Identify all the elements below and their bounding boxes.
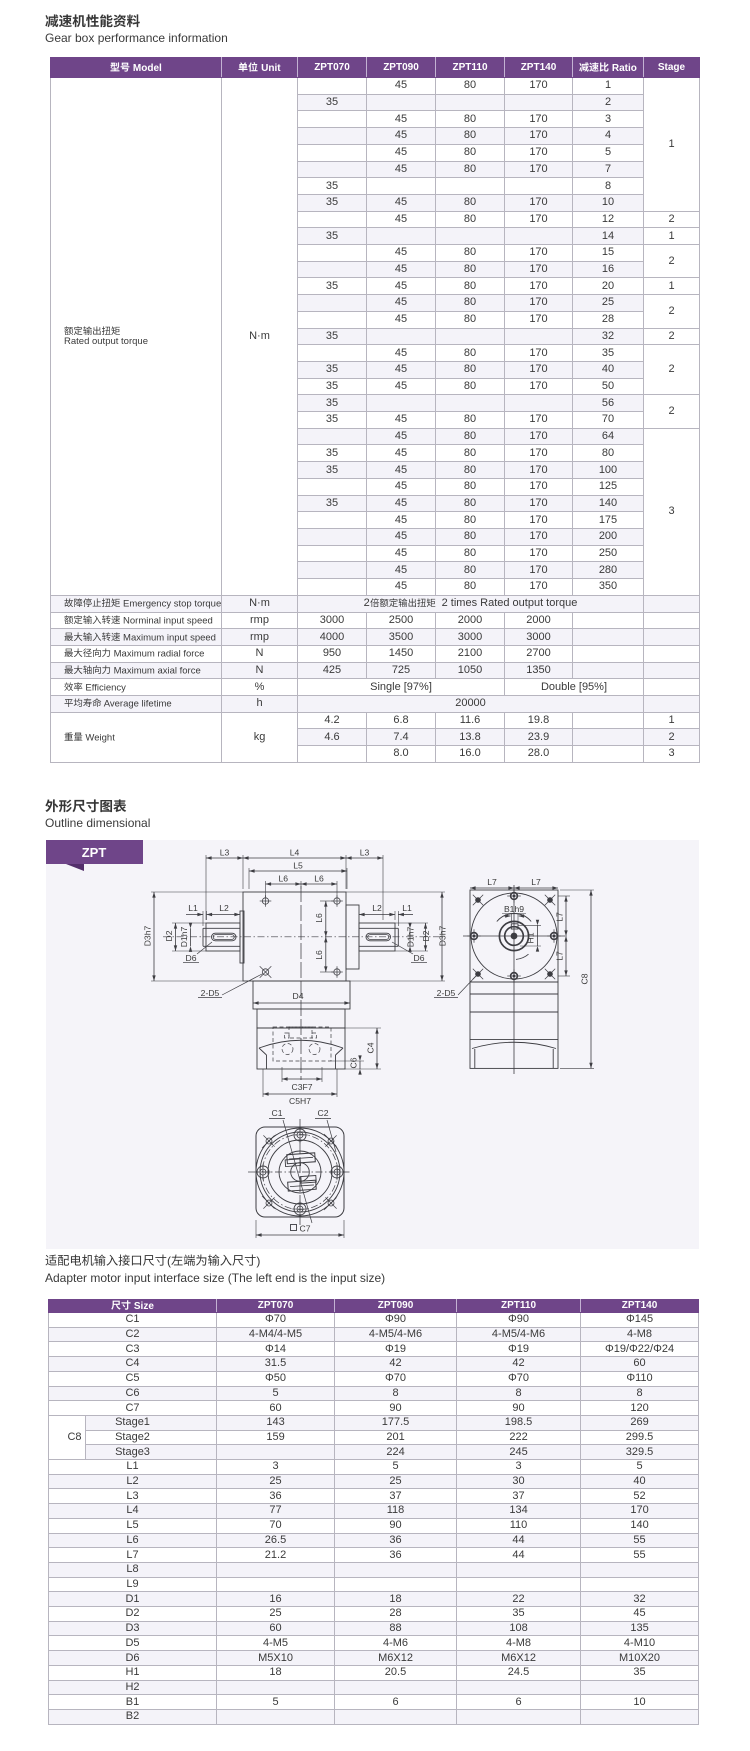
svg-text:D2: D2 — [421, 930, 431, 941]
svg-text:L2: L2 — [219, 903, 229, 913]
svg-text:D4: D4 — [293, 991, 304, 1001]
svg-text:B1h9: B1h9 — [504, 904, 524, 914]
svg-text:D6: D6 — [414, 953, 425, 963]
svg-text:L6: L6 — [314, 913, 324, 923]
svg-text:C4: C4 — [366, 1042, 376, 1053]
svg-text:L1: L1 — [402, 903, 412, 913]
svg-text:D1h7: D1h7 — [406, 927, 416, 948]
svg-text:D3h7: D3h7 — [143, 926, 153, 947]
svg-text:ZPT: ZPT — [82, 845, 107, 860]
svg-text:L3: L3 — [360, 848, 370, 858]
svg-text:D2: D2 — [164, 930, 174, 941]
svg-text:L4: L4 — [290, 848, 300, 858]
svg-text:C6: C6 — [349, 1057, 359, 1068]
svg-text:L5: L5 — [293, 861, 303, 871]
svg-text:D6: D6 — [186, 953, 197, 963]
svg-text:C8: C8 — [580, 973, 590, 984]
svg-text:D3h7: D3h7 — [438, 926, 448, 947]
svg-text:L7: L7 — [555, 912, 565, 922]
svg-text:C7: C7 — [300, 1224, 311, 1234]
svg-text:2-D5: 2-D5 — [201, 988, 220, 998]
svg-text:C2: C2 — [318, 1108, 329, 1118]
svg-text:L1: L1 — [188, 903, 198, 913]
svg-text:D1h7: D1h7 — [179, 927, 189, 948]
svg-text:C5H7: C5H7 — [289, 1096, 311, 1106]
svg-text:C1: C1 — [272, 1108, 283, 1118]
svg-text:L6: L6 — [278, 874, 288, 884]
svg-text:L6: L6 — [314, 874, 324, 884]
svg-text:L7: L7 — [531, 877, 541, 887]
svg-text:C3F7: C3F7 — [291, 1082, 312, 1092]
svg-text:2-D5: 2-D5 — [437, 988, 456, 998]
svg-text:L7: L7 — [487, 877, 497, 887]
svg-text:L7: L7 — [555, 951, 565, 961]
svg-text:H1: H1 — [526, 932, 536, 943]
svg-text:L3: L3 — [220, 848, 230, 858]
svg-text:L2: L2 — [372, 903, 382, 913]
svg-text:L6: L6 — [314, 950, 324, 960]
